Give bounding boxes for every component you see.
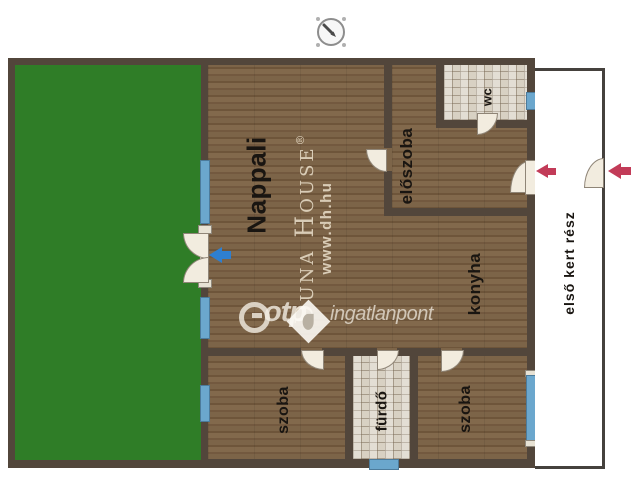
room-label-furdo: fürdő <box>374 391 391 432</box>
window-living-1 <box>200 160 210 224</box>
wall-wc-left <box>436 65 444 127</box>
compass-icon <box>312 13 350 51</box>
blue-arrow-tail <box>221 251 231 259</box>
floor-plan: Duna House® www.dh.hu otp ingatlanpont N… <box>0 0 640 480</box>
room-label-eloszoba: előszoba <box>397 128 417 205</box>
red-arrow-tail-outer <box>620 167 631 175</box>
wall-szoba-furdo <box>345 348 353 459</box>
window-living-2 <box>200 297 210 339</box>
room-label-nappali: Nappali <box>242 136 273 233</box>
otp-watermark-suffix: ingatlanpont <box>330 303 433 326</box>
wall-middle-horizontal <box>208 348 527 356</box>
room-label-wc: wc <box>480 88 495 106</box>
dunahouse-watermark-url: www.dh.hu <box>318 131 336 324</box>
room-label-szoba-left: szoba <box>275 386 293 434</box>
flame-icon <box>303 314 314 330</box>
window-szoba-left <box>200 385 210 422</box>
wall-eloszoba-bottom <box>384 208 527 216</box>
registered-mark: ® <box>294 131 307 145</box>
room-label-szoba-right: szoba <box>457 385 475 433</box>
wall-eloszoba-left <box>384 65 392 216</box>
otp-logo-bar <box>252 313 262 318</box>
room-label-front-garden: első kert rész <box>561 211 577 315</box>
window-furdo <box>369 459 399 470</box>
garden-area <box>15 65 201 460</box>
wall-furdo-szoba <box>410 348 418 459</box>
room-label-konyha: konyha <box>465 253 485 316</box>
red-arrow-tail-inner <box>547 168 556 175</box>
